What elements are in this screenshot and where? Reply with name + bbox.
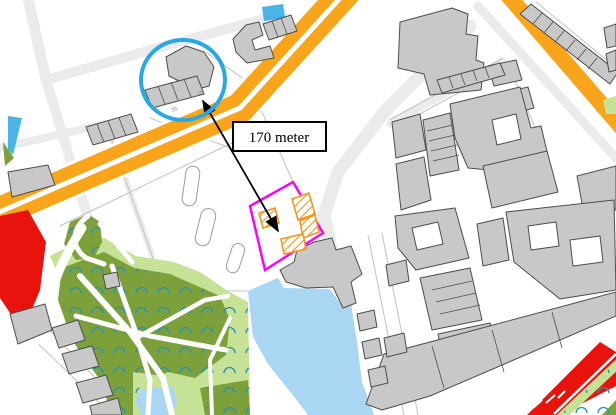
building bbox=[477, 218, 509, 266]
map-svg: 09 05 170 meter bbox=[0, 0, 616, 415]
building bbox=[392, 114, 426, 158]
building bbox=[386, 260, 409, 286]
distance-label-text: 170 meter bbox=[249, 130, 309, 146]
building bbox=[396, 157, 431, 210]
building bbox=[103, 272, 120, 289]
building bbox=[368, 366, 388, 387]
building bbox=[357, 310, 377, 331]
map-canvas: 09 05 170 meter bbox=[0, 0, 616, 415]
building bbox=[362, 338, 382, 359]
